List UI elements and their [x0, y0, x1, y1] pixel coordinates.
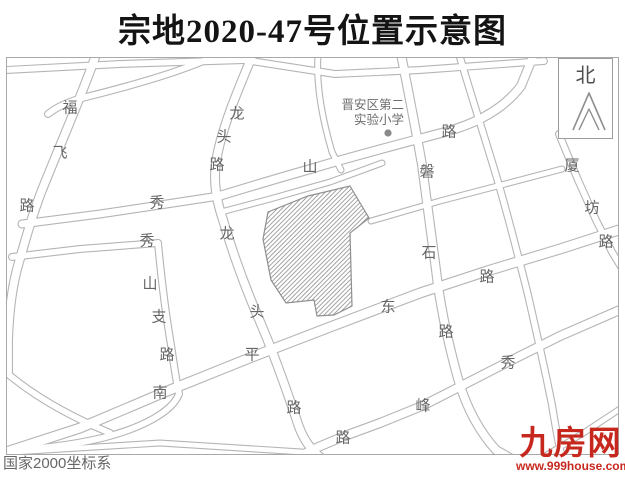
- road-label-char: 龙: [219, 223, 234, 244]
- map-canvas: 晋安区第二 实验小学 福飞路龙头路龙头路秀山路秀山支路南平东路磐石路秀峰路厦坊路…: [6, 57, 619, 455]
- road-label-char: 路: [335, 427, 350, 448]
- road-label-char: 路: [19, 195, 34, 216]
- school-marker-dot: [384, 129, 391, 136]
- road-label-char: 龙: [229, 103, 244, 124]
- road-label-char: 路: [479, 266, 494, 287]
- parcel-polygon: [263, 186, 369, 316]
- road-label-char: 路: [598, 231, 613, 252]
- road-label-char: 路: [438, 321, 453, 342]
- road-network: [7, 58, 618, 454]
- school-label-line2: 实验小学: [341, 113, 404, 128]
- site-logo-url: www.999house.com: [516, 460, 625, 473]
- road-label-char: 磐: [419, 161, 434, 182]
- site-logo: 九房网 www.999house.com: [516, 426, 625, 473]
- road-label-char: 飞: [52, 142, 67, 163]
- road-label-char: 山: [302, 156, 317, 177]
- school-label: 晋安区第二 实验小学: [341, 98, 404, 128]
- road-label-char: 东: [380, 296, 395, 317]
- road-label-char: 坊: [584, 197, 599, 218]
- road-label-char: 秀: [500, 352, 515, 373]
- north-label: 北: [559, 65, 612, 87]
- page-title: 宗地2020-47号位置示意图: [0, 4, 625, 52]
- road-label-char: 支: [151, 306, 166, 327]
- road-label-char: 峰: [415, 395, 430, 416]
- site-logo-text: 九房网: [516, 426, 625, 460]
- page-root: 宗地2020-47号位置示意图: [0, 0, 625, 479]
- road-label-char: 头: [249, 301, 264, 322]
- school-label-line1: 晋安区第二: [341, 98, 404, 113]
- road-label-char: 头: [216, 126, 231, 147]
- road-label-char: 秀: [139, 230, 154, 251]
- road-label-char: 福: [62, 97, 77, 118]
- road-label-char: 平: [244, 344, 259, 365]
- road-label-char: 南: [152, 382, 167, 403]
- north-box: 北: [558, 58, 613, 139]
- road-label-char: 厦: [564, 155, 579, 176]
- road-label-char: 路: [441, 121, 456, 142]
- road-label-char: 路: [209, 154, 224, 175]
- road-label-char: 秀: [149, 192, 164, 213]
- road-label-char: 路: [286, 397, 301, 418]
- coordinate-system-note: 国家2000坐标系: [3, 452, 111, 473]
- road-label-char: 石: [421, 242, 436, 263]
- road-label-char: 路: [159, 344, 174, 365]
- road-label-char: 山: [142, 273, 157, 294]
- north-arrow-icon: [559, 87, 612, 133]
